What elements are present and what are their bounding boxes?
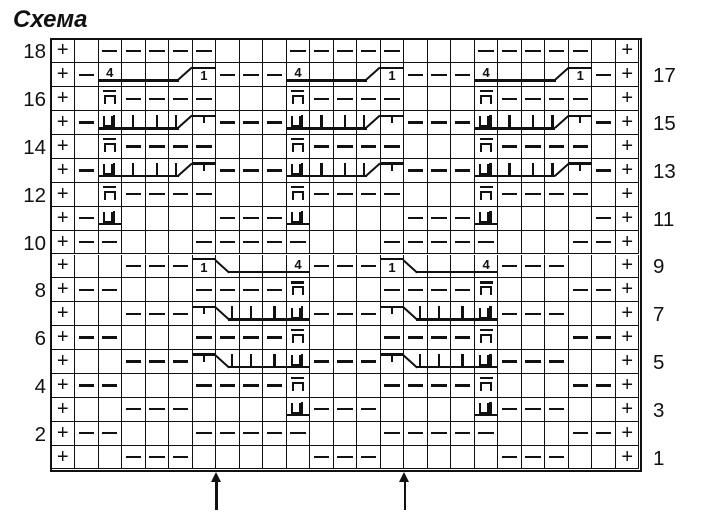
chart-cell — [428, 255, 452, 279]
chart-cell: 1 — [193, 63, 217, 87]
chart-cell — [75, 374, 99, 398]
chart-cell — [498, 302, 522, 326]
chart-cell: + — [52, 231, 76, 255]
chart-cell — [75, 278, 99, 302]
chart-cell — [475, 398, 499, 422]
chart-cell — [75, 231, 99, 255]
chart-cell: + — [52, 398, 76, 422]
chart-cell — [263, 40, 287, 64]
chart-cell — [146, 255, 170, 279]
repeat-arrow-head-icon — [211, 472, 221, 482]
chart-cell — [334, 40, 358, 64]
chart-cell — [357, 135, 381, 159]
chart-cell — [122, 278, 146, 302]
chart-cell — [451, 255, 475, 279]
chart-cell: + — [616, 87, 640, 111]
chart-cell — [146, 231, 170, 255]
chart-cell — [263, 422, 287, 446]
chart-cell: 1 — [193, 255, 217, 279]
chart-cell — [334, 111, 358, 135]
chart-cell — [569, 255, 593, 279]
chart-cell — [451, 40, 475, 64]
chart-cell — [240, 63, 264, 87]
chart-cell: 4 — [475, 63, 499, 87]
chart-cell — [122, 111, 146, 135]
chart-cell: + — [616, 40, 640, 64]
chart-cell — [334, 207, 358, 231]
chart-cell: + — [52, 374, 76, 398]
chart-cell — [522, 183, 546, 207]
chart-cell — [451, 446, 475, 470]
chart-cell — [522, 278, 546, 302]
chart-cell — [357, 231, 381, 255]
chart-cell — [592, 183, 616, 207]
chart-cell — [169, 135, 193, 159]
chart-cell — [545, 183, 569, 207]
chart-cell — [569, 278, 593, 302]
chart-cell — [240, 302, 264, 326]
chart-cell — [592, 40, 616, 64]
chart-cell — [193, 374, 217, 398]
chart-cell — [522, 422, 546, 446]
chart-cell — [334, 446, 358, 470]
chart-cell — [522, 231, 546, 255]
chart-cell — [75, 255, 99, 279]
chart-cell — [287, 40, 311, 64]
row-label-left: 16 — [12, 90, 46, 111]
chart-cell — [569, 422, 593, 446]
chart-cell — [334, 231, 358, 255]
chart-cell — [592, 63, 616, 87]
chart-cell — [569, 40, 593, 64]
chart-cell — [146, 40, 170, 64]
chart-cell — [451, 350, 475, 374]
chart-cell — [240, 446, 264, 470]
row-label-right: 11 — [653, 210, 674, 231]
chart-cell — [310, 255, 334, 279]
chart-cell — [146, 278, 170, 302]
chart-cell — [287, 135, 311, 159]
chart-cell — [193, 302, 217, 326]
chart-cell — [498, 326, 522, 350]
chart-cell — [169, 278, 193, 302]
chart-cell — [592, 231, 616, 255]
chart-cell — [498, 374, 522, 398]
chart-cell — [592, 278, 616, 302]
repeat-arrow-icon — [215, 481, 218, 510]
chart-cell — [545, 398, 569, 422]
chart-cell — [169, 422, 193, 446]
chart-cell: + — [616, 63, 640, 87]
chart-cell — [522, 111, 546, 135]
chart-cell — [592, 326, 616, 350]
chart-cell — [216, 326, 240, 350]
chart-cell — [169, 302, 193, 326]
chart-cell — [287, 326, 311, 350]
chart-cell — [75, 207, 99, 231]
chart-cell: + — [52, 278, 76, 302]
chart-cell — [334, 374, 358, 398]
chart-cell — [216, 207, 240, 231]
chart-cell: 4 — [287, 63, 311, 87]
chart-cell — [428, 374, 452, 398]
chart-cell — [75, 422, 99, 446]
chart-cell — [498, 350, 522, 374]
chart-cell: 4 — [287, 255, 311, 279]
chart-cell — [381, 135, 405, 159]
chart-cell — [216, 111, 240, 135]
chart-cell — [146, 183, 170, 207]
chart-cell — [75, 63, 99, 87]
chart-cell — [451, 159, 475, 183]
chart-cell — [404, 183, 428, 207]
chart-cell: + — [616, 422, 640, 446]
chart-cell — [428, 302, 452, 326]
chart-cell — [334, 159, 358, 183]
chart-cell — [169, 374, 193, 398]
chart-cell — [522, 374, 546, 398]
chart-cell — [216, 135, 240, 159]
chart-cell — [381, 231, 405, 255]
row-label-right: 15 — [653, 114, 676, 135]
chart-cell: + — [616, 326, 640, 350]
chart-cell — [498, 63, 522, 87]
chart-cell — [357, 278, 381, 302]
chart-cell — [381, 350, 405, 374]
chart-cell — [357, 40, 381, 64]
chart-cell — [122, 350, 146, 374]
chart-cell — [381, 159, 405, 183]
chart-cell — [522, 326, 546, 350]
row-label-left: 8 — [12, 281, 46, 302]
chart-cell — [310, 87, 334, 111]
chart-cell — [475, 422, 499, 446]
chart-cell — [287, 278, 311, 302]
chart-cell — [146, 422, 170, 446]
repeat-arrow-icon — [404, 481, 407, 510]
chart-cell — [122, 183, 146, 207]
chart-cell — [263, 135, 287, 159]
chart-cell — [169, 207, 193, 231]
chart-cell — [451, 111, 475, 135]
chart-cell — [475, 446, 499, 470]
chart-cell: + — [616, 446, 640, 470]
chart-cell: + — [52, 422, 76, 446]
chart-cell — [545, 446, 569, 470]
chart-cell — [310, 446, 334, 470]
chart-cell — [122, 398, 146, 422]
chart-cell — [545, 302, 569, 326]
chart-cell — [240, 207, 264, 231]
chart-cell — [75, 135, 99, 159]
chart-cell — [545, 350, 569, 374]
chart-cell — [146, 87, 170, 111]
chart-cell: + — [616, 398, 640, 422]
chart-cell — [216, 278, 240, 302]
chart-cell — [99, 302, 123, 326]
chart-cell: + — [52, 159, 76, 183]
chart-cell — [287, 398, 311, 422]
chart-cell — [99, 40, 123, 64]
chart-cell — [310, 40, 334, 64]
chart-cell — [75, 326, 99, 350]
chart-cell — [428, 278, 452, 302]
chart-cell — [404, 326, 428, 350]
row-label-left: 12 — [12, 186, 46, 207]
chart-cell — [122, 87, 146, 111]
chart-cell — [522, 159, 546, 183]
chart-cell — [522, 446, 546, 470]
chart-cell — [334, 350, 358, 374]
chart-cell — [428, 446, 452, 470]
chart-cell — [216, 398, 240, 422]
chart-cell — [193, 111, 217, 135]
chart-cell — [287, 350, 311, 374]
chart-cell — [475, 111, 499, 135]
chart-cell — [357, 255, 381, 279]
chart-cell — [263, 183, 287, 207]
chart-cell — [99, 183, 123, 207]
chart-cell — [146, 207, 170, 231]
chart-cell — [428, 207, 452, 231]
chart-cell — [193, 350, 217, 374]
chart-cell — [240, 159, 264, 183]
chart-cell — [451, 326, 475, 350]
chart-cell — [122, 326, 146, 350]
chart-cell — [475, 231, 499, 255]
chart-cell — [122, 40, 146, 64]
chart-cell — [287, 87, 311, 111]
chart-cell — [216, 255, 240, 279]
chart-cell — [122, 255, 146, 279]
chart-cell: 4 — [99, 63, 123, 87]
chart-cell — [451, 63, 475, 87]
chart-cell — [428, 159, 452, 183]
chart-cell — [169, 159, 193, 183]
chart-cell — [428, 135, 452, 159]
chart-cell — [498, 278, 522, 302]
chart-cell: + — [52, 40, 76, 64]
chart-cell: + — [52, 255, 76, 279]
chart-cell — [569, 374, 593, 398]
chart-cell — [522, 398, 546, 422]
chart-cell — [404, 135, 428, 159]
chart-cell — [498, 111, 522, 135]
chart-cell — [122, 302, 146, 326]
chart-cell — [310, 111, 334, 135]
row-label-right: 7 — [653, 305, 664, 326]
chart-cell: + — [52, 350, 76, 374]
chart-cell — [240, 326, 264, 350]
chart-cell — [592, 398, 616, 422]
chart-cell — [334, 135, 358, 159]
chart-cell — [310, 302, 334, 326]
chart-cell — [592, 350, 616, 374]
chart-cell — [498, 135, 522, 159]
chart-cell — [357, 422, 381, 446]
chart-cell — [569, 231, 593, 255]
chart-cell: + — [52, 446, 76, 470]
chart-cell — [216, 40, 240, 64]
chart-cell — [381, 87, 405, 111]
row-label-left: 6 — [12, 329, 46, 350]
chart-cell — [357, 111, 381, 135]
chart-cell — [169, 231, 193, 255]
chart-cell — [99, 422, 123, 446]
chart-cell — [357, 207, 381, 231]
chart-cell — [404, 207, 428, 231]
chart-cell — [310, 207, 334, 231]
chart-cell — [592, 374, 616, 398]
row-label-right: 3 — [653, 401, 664, 422]
chart-cell — [146, 326, 170, 350]
chart-cell — [193, 87, 217, 111]
chart-cell — [381, 183, 405, 207]
chart-cell — [310, 63, 334, 87]
chart-cell — [310, 398, 334, 422]
chart-cell — [99, 159, 123, 183]
chart-cell — [263, 87, 287, 111]
chart-cell — [357, 374, 381, 398]
chart-cell — [592, 255, 616, 279]
chart-cell — [404, 278, 428, 302]
chart-cell — [193, 446, 217, 470]
chart-cell — [357, 183, 381, 207]
chart-cell — [263, 350, 287, 374]
chart-cell — [287, 302, 311, 326]
chart-cell — [475, 87, 499, 111]
chart-cell: + — [616, 255, 640, 279]
chart-cell — [592, 207, 616, 231]
chart-cell — [193, 40, 217, 64]
chart-cell — [498, 231, 522, 255]
chart-cell — [592, 446, 616, 470]
chart-cell — [451, 398, 475, 422]
chart-cell — [240, 255, 264, 279]
chart-cell — [498, 446, 522, 470]
row-label-left: 2 — [12, 425, 46, 446]
chart-cell — [99, 231, 123, 255]
chart-cell — [357, 63, 381, 87]
chart-cell — [310, 159, 334, 183]
chart-cell: + — [52, 183, 76, 207]
chart-cell — [169, 350, 193, 374]
chart-cell — [451, 302, 475, 326]
chart-cell — [404, 159, 428, 183]
chart-cell — [545, 231, 569, 255]
chart-cell — [193, 159, 217, 183]
row-label-left: 10 — [12, 234, 46, 255]
chart-cell — [451, 87, 475, 111]
chart-cell — [475, 183, 499, 207]
chart-cell — [381, 111, 405, 135]
chart-cell — [569, 446, 593, 470]
chart-cell — [99, 326, 123, 350]
chart-cell — [75, 398, 99, 422]
chart-cell — [287, 111, 311, 135]
chart-cell — [545, 326, 569, 350]
chart-cell — [545, 63, 569, 87]
chart-cell — [146, 135, 170, 159]
chart-cell — [310, 422, 334, 446]
chart-cell — [169, 446, 193, 470]
chart-cell: + — [616, 350, 640, 374]
chart-cell — [592, 422, 616, 446]
chart-cell — [334, 87, 358, 111]
chart-cell — [545, 278, 569, 302]
chart-cell — [569, 350, 593, 374]
row-label-right: 5 — [653, 353, 664, 374]
chart-cell — [498, 40, 522, 64]
chart-cell — [240, 135, 264, 159]
chart-cell — [404, 446, 428, 470]
chart-cell — [592, 302, 616, 326]
chart-cell — [216, 350, 240, 374]
chart-cell — [122, 374, 146, 398]
chart-cell — [75, 111, 99, 135]
chart-cell — [263, 159, 287, 183]
chart-cell — [75, 183, 99, 207]
chart-cell — [498, 398, 522, 422]
chart-cell — [592, 111, 616, 135]
page-title: Схема — [13, 6, 88, 34]
chart-cell — [404, 87, 428, 111]
chart-cell — [216, 446, 240, 470]
chart-cell — [404, 63, 428, 87]
chart-cell — [475, 278, 499, 302]
chart-cell — [287, 183, 311, 207]
chart-cell: 1 — [381, 63, 405, 87]
chart-cell — [569, 87, 593, 111]
chart-cell — [334, 398, 358, 422]
chart-cell — [545, 159, 569, 183]
chart-cell — [475, 135, 499, 159]
chart-cell — [428, 398, 452, 422]
chart-cell — [545, 135, 569, 159]
chart-cell — [240, 350, 264, 374]
chart-cell — [99, 111, 123, 135]
chart-cell — [381, 278, 405, 302]
knitting-chart-page: Схема +++414141++++++++++++++++1414+++++… — [0, 0, 714, 512]
chart-cell — [193, 135, 217, 159]
row-label-left: 4 — [12, 377, 46, 398]
chart-cell: + — [616, 183, 640, 207]
chart-cell: + — [52, 135, 76, 159]
chart-cell — [310, 183, 334, 207]
chart-cell — [569, 326, 593, 350]
chart-cell — [334, 278, 358, 302]
repeat-arrow-head-icon — [399, 472, 409, 482]
chart-cell — [216, 302, 240, 326]
chart-cell — [381, 374, 405, 398]
chart-cell — [522, 40, 546, 64]
chart-cell — [146, 111, 170, 135]
chart-cell — [99, 446, 123, 470]
knitting-chart-grid: +++414141++++++++++++++++1414+++++++++++… — [50, 38, 642, 472]
chart-cell — [263, 278, 287, 302]
chart-cell — [310, 231, 334, 255]
chart-cell — [334, 326, 358, 350]
chart-cell — [122, 159, 146, 183]
chart-cell — [569, 159, 593, 183]
chart-cell — [263, 446, 287, 470]
chart-cell: 4 — [475, 255, 499, 279]
chart-cell — [545, 207, 569, 231]
chart-cell — [216, 63, 240, 87]
chart-cell — [122, 231, 146, 255]
chart-cell — [428, 231, 452, 255]
chart-cell — [75, 87, 99, 111]
